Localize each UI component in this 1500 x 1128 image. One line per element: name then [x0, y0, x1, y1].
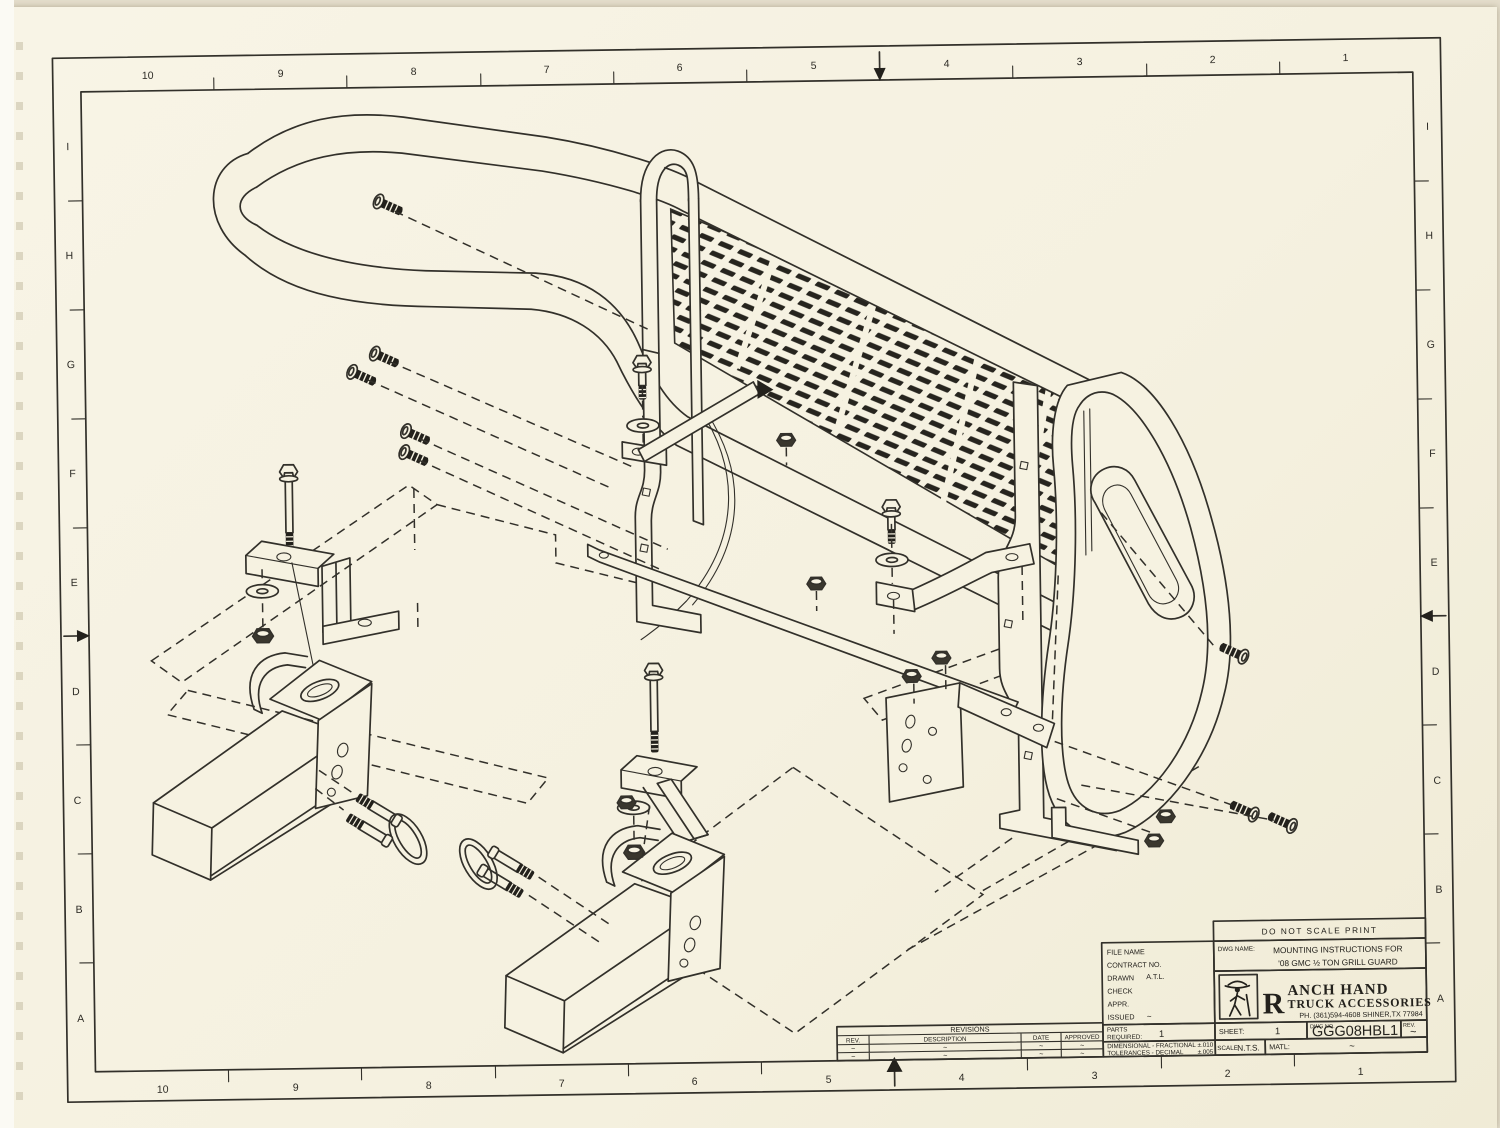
- center-mark-right: [1420, 610, 1446, 622]
- do-not-scale-note: DO NOT SCALE PRINT: [1262, 925, 1378, 937]
- zone-number: 8: [411, 66, 417, 78]
- hex-nut: [807, 577, 826, 590]
- drawn-value: A.T.L.: [1146, 972, 1165, 981]
- scanned-drawing-sheet: 10 9 8 7 6 5 4 3 2 1 10 9 8 7 6 5 4 3: [0, 0, 1500, 1128]
- center-bottom-bracket-assembly: [615, 663, 708, 860]
- receiver-pin-left: [344, 791, 434, 872]
- zone-number: 7: [559, 1078, 565, 1090]
- required-label: REQUIRED:: [1107, 1034, 1142, 1042]
- hex-bolt: [279, 465, 298, 554]
- center-mark-top: [873, 52, 885, 81]
- drawing-name: DWG NAME: MOUNTING INSTRUCTIONS FOR '08 …: [1218, 943, 1403, 969]
- machine-screw: [1265, 809, 1299, 835]
- zone-letter: E: [1430, 557, 1437, 569]
- zone-letter: I: [1426, 121, 1429, 133]
- zone-number: 4: [959, 1072, 965, 1084]
- zone-number: 2: [1225, 1068, 1231, 1080]
- hex-nut: [932, 651, 951, 664]
- left-ruler: I H G F E D C B A: [64, 141, 85, 1025]
- matl-label: MATL:: [1269, 1042, 1290, 1051]
- revisions-table: REVISIONS REV. DESCRIPTION DATE APPROVED…: [837, 1023, 1103, 1061]
- zone-letter: B: [75, 904, 82, 916]
- center-mark-left: [64, 630, 90, 642]
- revisions-title: REVISIONS: [950, 1024, 989, 1034]
- file-name-label: FILE NAME: [1107, 947, 1145, 957]
- zone-number: 1: [1343, 52, 1349, 64]
- zone-number: 3: [1092, 1070, 1098, 1082]
- exploded-assembly-drawing: [141, 101, 1302, 1059]
- blueprint-drawing: 10 9 8 7 6 5 4 3 2 1 10 9 8 7 6 5 4 3: [0, 0, 1500, 1128]
- receiver-bracket-left: [149, 652, 374, 881]
- receiver-pin-right: [452, 832, 536, 900]
- zone-number: 10: [142, 70, 154, 82]
- zone-number: 5: [811, 60, 817, 72]
- zone-number: 8: [426, 1080, 432, 1092]
- issued-label: ISSUED: [1108, 1012, 1135, 1021]
- scale-label: SCALE: [1217, 1045, 1238, 1052]
- flat-washer: [627, 419, 659, 433]
- parts-required: PARTS REQUIRED: 1: [1107, 1026, 1165, 1041]
- hex-nut: [1156, 810, 1175, 823]
- machine-screw: [1227, 797, 1261, 823]
- zone-letter: B: [1435, 884, 1442, 896]
- zone-number: 4: [944, 58, 950, 70]
- approved-cell: ~: [1080, 1049, 1084, 1058]
- zone-number: 9: [293, 1082, 299, 1094]
- zone-letter: H: [1425, 230, 1433, 242]
- zone-letter: I: [66, 141, 69, 153]
- scale-value: N.T.S.: [1237, 1042, 1260, 1052]
- dwg-name-line2: '08 GMC ½ TON GRILL GUARD: [1278, 956, 1398, 968]
- parts-label: PARTS: [1107, 1026, 1128, 1033]
- zone-number: 6: [692, 1076, 698, 1088]
- drawn-label: DRAWN: [1107, 973, 1134, 982]
- flat-washer: [876, 553, 908, 567]
- zone-number: 5: [826, 1074, 832, 1086]
- hex-nut: [777, 433, 796, 446]
- tolerances: DIMENSIONAL - FRACTIONAL ±.010 TOLERANCE…: [1107, 1042, 1214, 1058]
- dwg-name-label: DWG NAME:: [1218, 946, 1255, 954]
- zone-letter: G: [1427, 339, 1435, 351]
- zone-letter: H: [65, 250, 73, 262]
- hex-bolt: [644, 663, 663, 752]
- hex-nut: [902, 670, 921, 683]
- headlight-loop: [1036, 371, 1233, 856]
- zone-letter: E: [71, 577, 78, 589]
- zone-letter: G: [67, 359, 75, 371]
- cowboy-icon: [1225, 981, 1250, 1016]
- desc-cell: ~: [943, 1051, 947, 1060]
- hex-nut: [252, 629, 273, 643]
- dwg-name-line1: MOUNTING INSTRUCTIONS FOR: [1273, 943, 1403, 955]
- flat-washer: [246, 584, 278, 598]
- parts-value: 1: [1159, 1029, 1164, 1040]
- zone-number: 2: [1210, 54, 1216, 66]
- zone-number: 3: [1077, 56, 1083, 68]
- right-ruler: I H G F E D C B A: [1423, 121, 1444, 1005]
- zone-letter: C: [1433, 775, 1441, 787]
- zone-letter: F: [1429, 448, 1436, 460]
- check-label: CHECK: [1107, 986, 1132, 995]
- rev-cell: ~: [851, 1052, 855, 1061]
- center-mark-bottom: [886, 1057, 902, 1086]
- zone-letter: A: [1437, 993, 1444, 1005]
- zone-letter: A: [77, 1013, 84, 1025]
- machine-screw: [342, 192, 433, 471]
- brand-initial: R: [1262, 987, 1284, 1020]
- matl-value: ~: [1349, 1041, 1355, 1052]
- issued-value: ~: [1147, 1011, 1152, 1021]
- brand-phone: PH. (361)594-4608 SHINER,TX 77984: [1299, 1009, 1423, 1020]
- rev-value: ~: [1410, 1026, 1417, 1038]
- zone-number: 6: [677, 62, 683, 74]
- zone-number: 1: [1358, 1066, 1364, 1078]
- drawing-info-fields: FILE NAME CONTRACT NO. DRAWN A.T.L. CHEC…: [1107, 947, 1165, 1022]
- appr-label: APPR.: [1108, 999, 1130, 1008]
- hex-nut: [617, 796, 636, 809]
- zone-letter: D: [72, 686, 80, 698]
- zone-number: 7: [544, 64, 550, 76]
- grille-guard-end-bend: [213, 153, 258, 256]
- zone-number: 9: [278, 68, 284, 80]
- brand-logo: R ANCH HAND TRUCK ACCESSORIES PH. (361)5…: [1219, 972, 1432, 1021]
- tolerance-value2: ±.005: [1198, 1049, 1214, 1056]
- sheet-label: SHEET:: [1219, 1027, 1244, 1036]
- zone-number: 10: [157, 1084, 169, 1096]
- sheet-value: 1: [1275, 1026, 1280, 1037]
- date-cell: ~: [1039, 1049, 1043, 1058]
- zone-letter: C: [74, 795, 82, 807]
- hex-nut: [1145, 834, 1164, 847]
- title-block: DO NOT SCALE PRINT FILE NAME CONTRACT NO…: [1101, 918, 1432, 1057]
- zone-letter: F: [69, 468, 76, 480]
- top-ruler: 10 9 8 7 6 5 4 3 2 1: [142, 52, 1349, 82]
- tolerance-line2: TOLERANCES - DECIMAL: [1107, 1049, 1184, 1057]
- dwg-no-value: GGG08HBL1: [1312, 1023, 1398, 1040]
- zone-letter: D: [1432, 666, 1440, 678]
- contract-label: CONTRACT NO.: [1107, 960, 1162, 970]
